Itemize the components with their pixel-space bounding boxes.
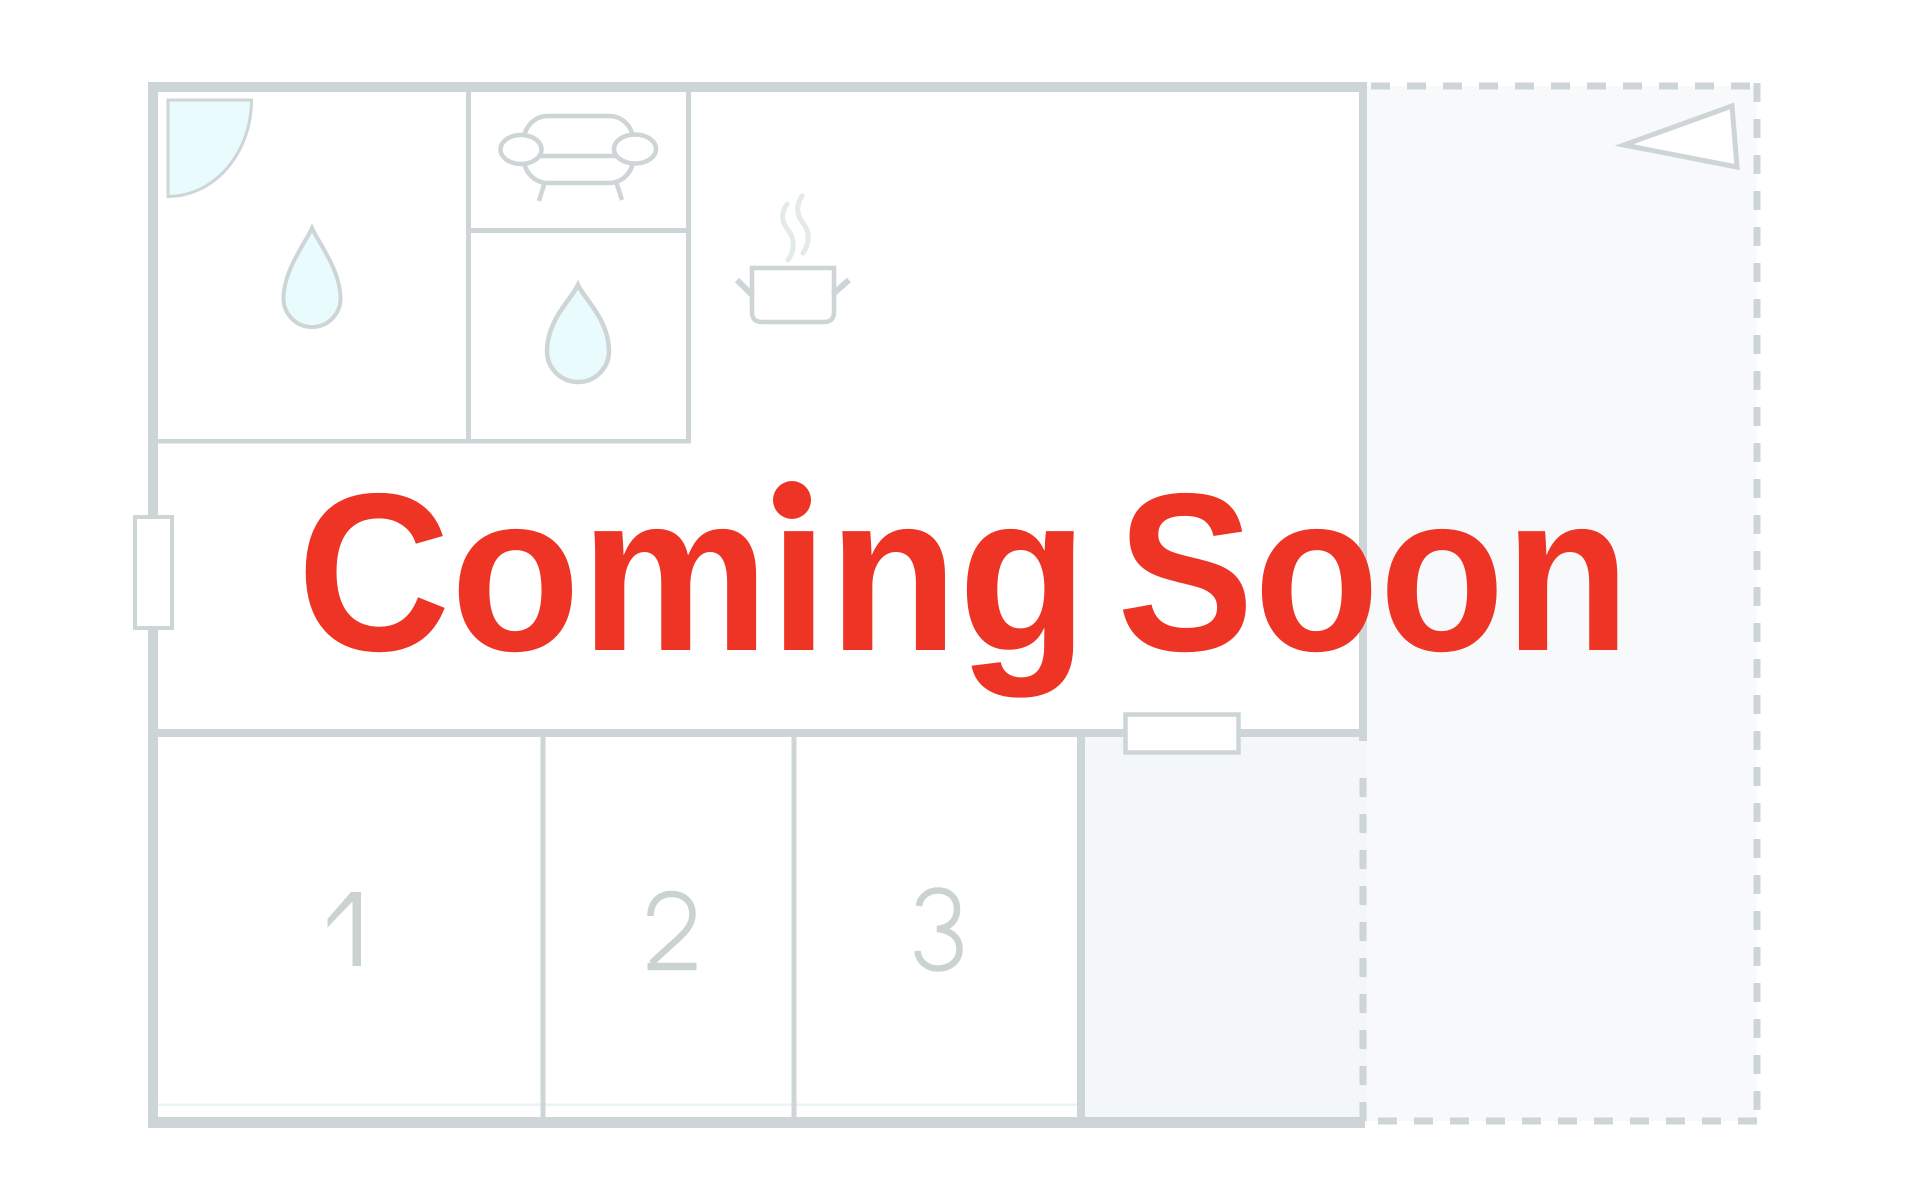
svg-text:Soon: Soon	[1117, 446, 1630, 698]
svg-text:Coming: Coming	[297, 446, 1088, 698]
